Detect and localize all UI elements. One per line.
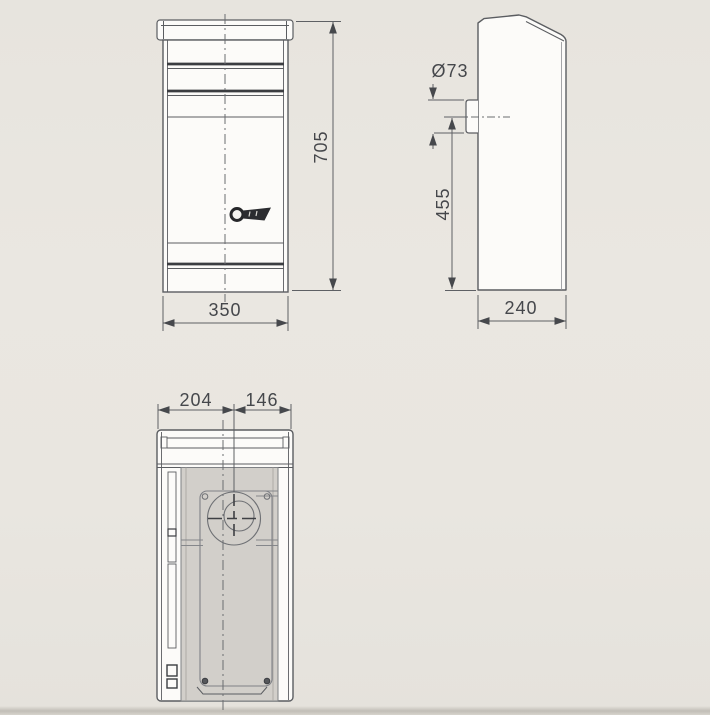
back-panel [181, 468, 278, 702]
dim-side-inlet-diameter-73: Ø73 [428, 61, 469, 149]
front-view [157, 14, 293, 302]
dim-label-front-width: 350 [208, 300, 241, 320]
side-view [466, 15, 566, 290]
dim-front-width-350: 350 [163, 296, 288, 331]
drawing-svg: 705 350 Ø73 455 [0, 0, 710, 715]
dim-label-offset-left: 204 [179, 390, 212, 410]
back-screw-bottom-right [264, 678, 270, 684]
back-view [157, 420, 293, 711]
side-outline [478, 15, 566, 290]
dim-label-inlet-diameter: Ø73 [431, 61, 468, 81]
dim-front-height-705: 705 [292, 22, 341, 291]
dim-label-inlet-height: 455 [433, 187, 453, 220]
technical-drawing: 705 350 Ø73 455 [0, 0, 710, 715]
dim-side-depth-240: 240 [478, 295, 566, 329]
back-screw-bottom-left [202, 678, 208, 684]
dim-label-front-height: 705 [311, 130, 331, 163]
dim-side-inlet-height-455: 455 [433, 117, 476, 291]
photo-bottom-shadow [0, 706, 710, 715]
dim-label-depth: 240 [504, 298, 537, 318]
dim-label-offset-right: 146 [245, 390, 278, 410]
